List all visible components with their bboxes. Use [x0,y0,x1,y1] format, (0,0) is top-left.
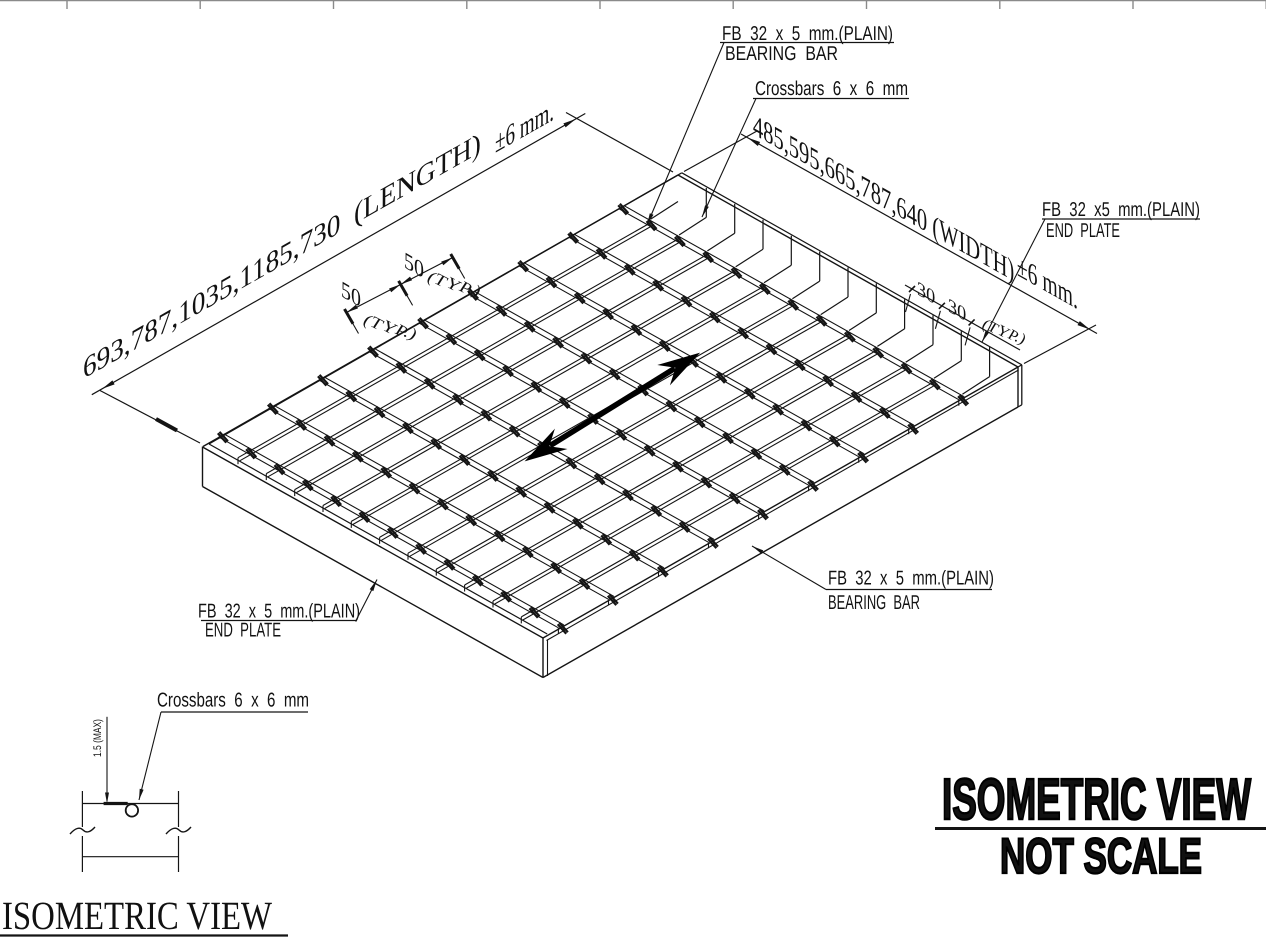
svg-text:END PLATE: END PLATE [1046,220,1120,242]
svg-text:ISOMETRIC VIEW: ISOMETRIC VIEW [2,893,272,938]
svg-text:FB 32 x5 mm.(PLAIN): FB 32 x5 mm.(PLAIN) [1042,199,1200,221]
svg-text:NOT SCALE: NOT SCALE [1000,828,1202,884]
svg-text:ISOMETRIC VIEW: ISOMETRIC VIEW [942,767,1251,832]
svg-text:Crossbars 6 x 6 mm: Crossbars 6 x 6 mm [755,78,908,100]
svg-text:1.5 (MAX): 1.5 (MAX) [92,719,104,757]
svg-text:FB 32 x 5 mm.(PLAIN): FB 32 x 5 mm.(PLAIN) [828,568,994,590]
svg-text:BEARING BAR: BEARING BAR [725,43,838,65]
svg-text:BEARING BAR: BEARING BAR [828,592,920,614]
svg-text:FB 32 x 5 mm.(PLAIN): FB 32 x 5 mm.(PLAIN) [722,23,893,45]
svg-text:END PLATE: END PLATE [205,620,281,642]
svg-text:Crossbars 6 x 6 mm: Crossbars 6 x 6 mm [157,690,309,712]
